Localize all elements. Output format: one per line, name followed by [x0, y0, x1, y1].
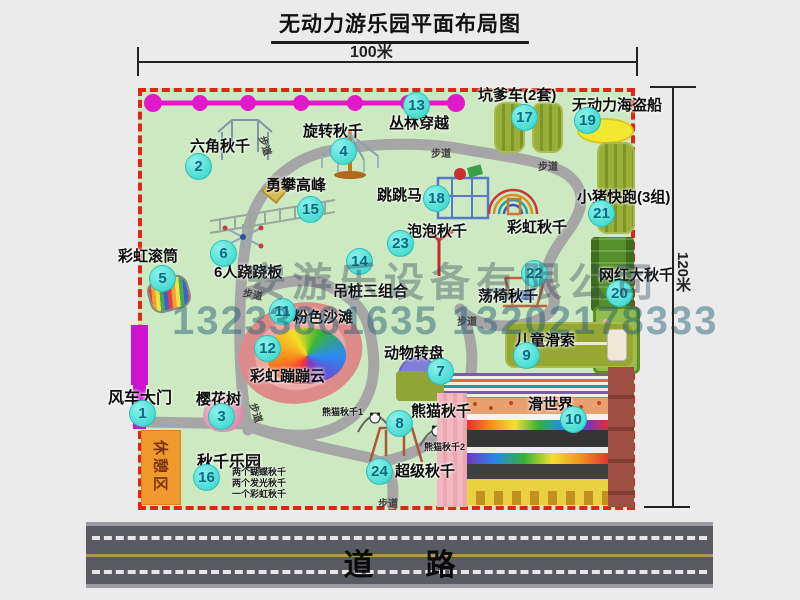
- attr-num-8: 8: [386, 410, 413, 437]
- attr-label-pink-beach: 粉色沙滩: [293, 306, 353, 327]
- walkway-label: 步道: [378, 495, 398, 510]
- dim-height-tick-bottom: [644, 506, 690, 508]
- attr-label-climbing-peak: 勇攀高峰: [266, 174, 326, 195]
- dim-width-tick-right: [636, 47, 638, 76]
- attr-label-pit-car: 坑爹车(2套): [478, 84, 556, 105]
- windmill-gate-post: [131, 325, 148, 385]
- walkway-label: 步道: [431, 145, 451, 160]
- road-label: 道路: [86, 540, 713, 584]
- attr-num-13: 13: [403, 92, 430, 119]
- page-title: 无动力游乐园平面布局图: [271, 8, 529, 44]
- attr-label-rotating-swing: 旋转秋千: [303, 120, 363, 141]
- attr-num-17: 17: [511, 104, 538, 131]
- attr-label-panda-swing: 熊猫秋千: [411, 400, 471, 421]
- attr-label-jumping-horse: 跳跳马: [377, 184, 422, 205]
- zipline-pod: [607, 329, 627, 361]
- attr-num-6: 6: [210, 240, 237, 267]
- slide-world-slides: [467, 398, 610, 505]
- attr-num-24: 24: [366, 458, 393, 485]
- attr-num-19: 19: [574, 107, 601, 134]
- attr-num-23: 23: [387, 230, 414, 257]
- slide-world-tower: [608, 367, 634, 507]
- pit-car-track-2: [532, 102, 563, 153]
- attr-num-12: 12: [254, 335, 281, 362]
- attr-num-11: 11: [269, 298, 296, 325]
- dim-height-line: [672, 87, 674, 507]
- attr-num-14: 14: [346, 248, 373, 275]
- attr-num-22: 22: [521, 260, 548, 287]
- attr-num-9: 9: [513, 342, 540, 369]
- rest-area-box: 休憩区: [141, 430, 181, 505]
- attr-num-5: 5: [149, 265, 176, 292]
- swing-park-note-3: 一个彩虹秋千: [232, 487, 286, 500]
- attr-label-rainbow-swing: 彩虹秋千: [507, 216, 567, 237]
- attr-num-16: 16: [193, 464, 220, 491]
- dim-width-line: [138, 61, 637, 63]
- walkway-label: 步道: [538, 158, 558, 173]
- dim-width-tick-left: [137, 47, 139, 76]
- attr-num-15: 15: [297, 196, 324, 223]
- attr-num-7: 7: [427, 358, 454, 385]
- attr-num-3: 3: [208, 403, 235, 430]
- attr-num-1: 1: [129, 400, 156, 427]
- attr-num-21: 21: [588, 200, 615, 227]
- attr-num-20: 20: [606, 280, 633, 307]
- attr-label-hanging-piles: 吊桩三组合: [333, 280, 408, 301]
- attr-num-18: 18: [423, 185, 450, 212]
- attr-num-2: 2: [185, 153, 212, 180]
- walkway-label: 步道: [457, 313, 477, 328]
- dim-height-tick-top: [650, 86, 696, 88]
- attr-num-4: 4: [330, 138, 357, 165]
- dim-height-label: 120米: [672, 252, 693, 292]
- road: 道路: [86, 522, 713, 588]
- panda-swing-1-note: 熊猫秋千1: [322, 405, 363, 418]
- dim-width-label: 100米: [350, 38, 393, 62]
- attr-label-super-swing: 超级秋千: [395, 460, 455, 481]
- attr-label-swing-chair: 荡椅秋千: [478, 285, 538, 306]
- attr-num-10: 10: [560, 406, 587, 433]
- attr-label-rainbow-roller: 彩虹滚筒: [118, 245, 178, 266]
- park-layout-screenshot: 无动力游乐园平面布局图 100米 120米 休憩区: [0, 0, 800, 600]
- panda-swing-2-note: 熊猫秋千2: [424, 440, 465, 453]
- attr-label-bubble-swing: 泡泡秋千: [407, 220, 467, 241]
- rest-area-label: 休憩区: [151, 440, 172, 494]
- attr-label-bounce-cloud: 彩虹蹦蹦云: [250, 365, 325, 386]
